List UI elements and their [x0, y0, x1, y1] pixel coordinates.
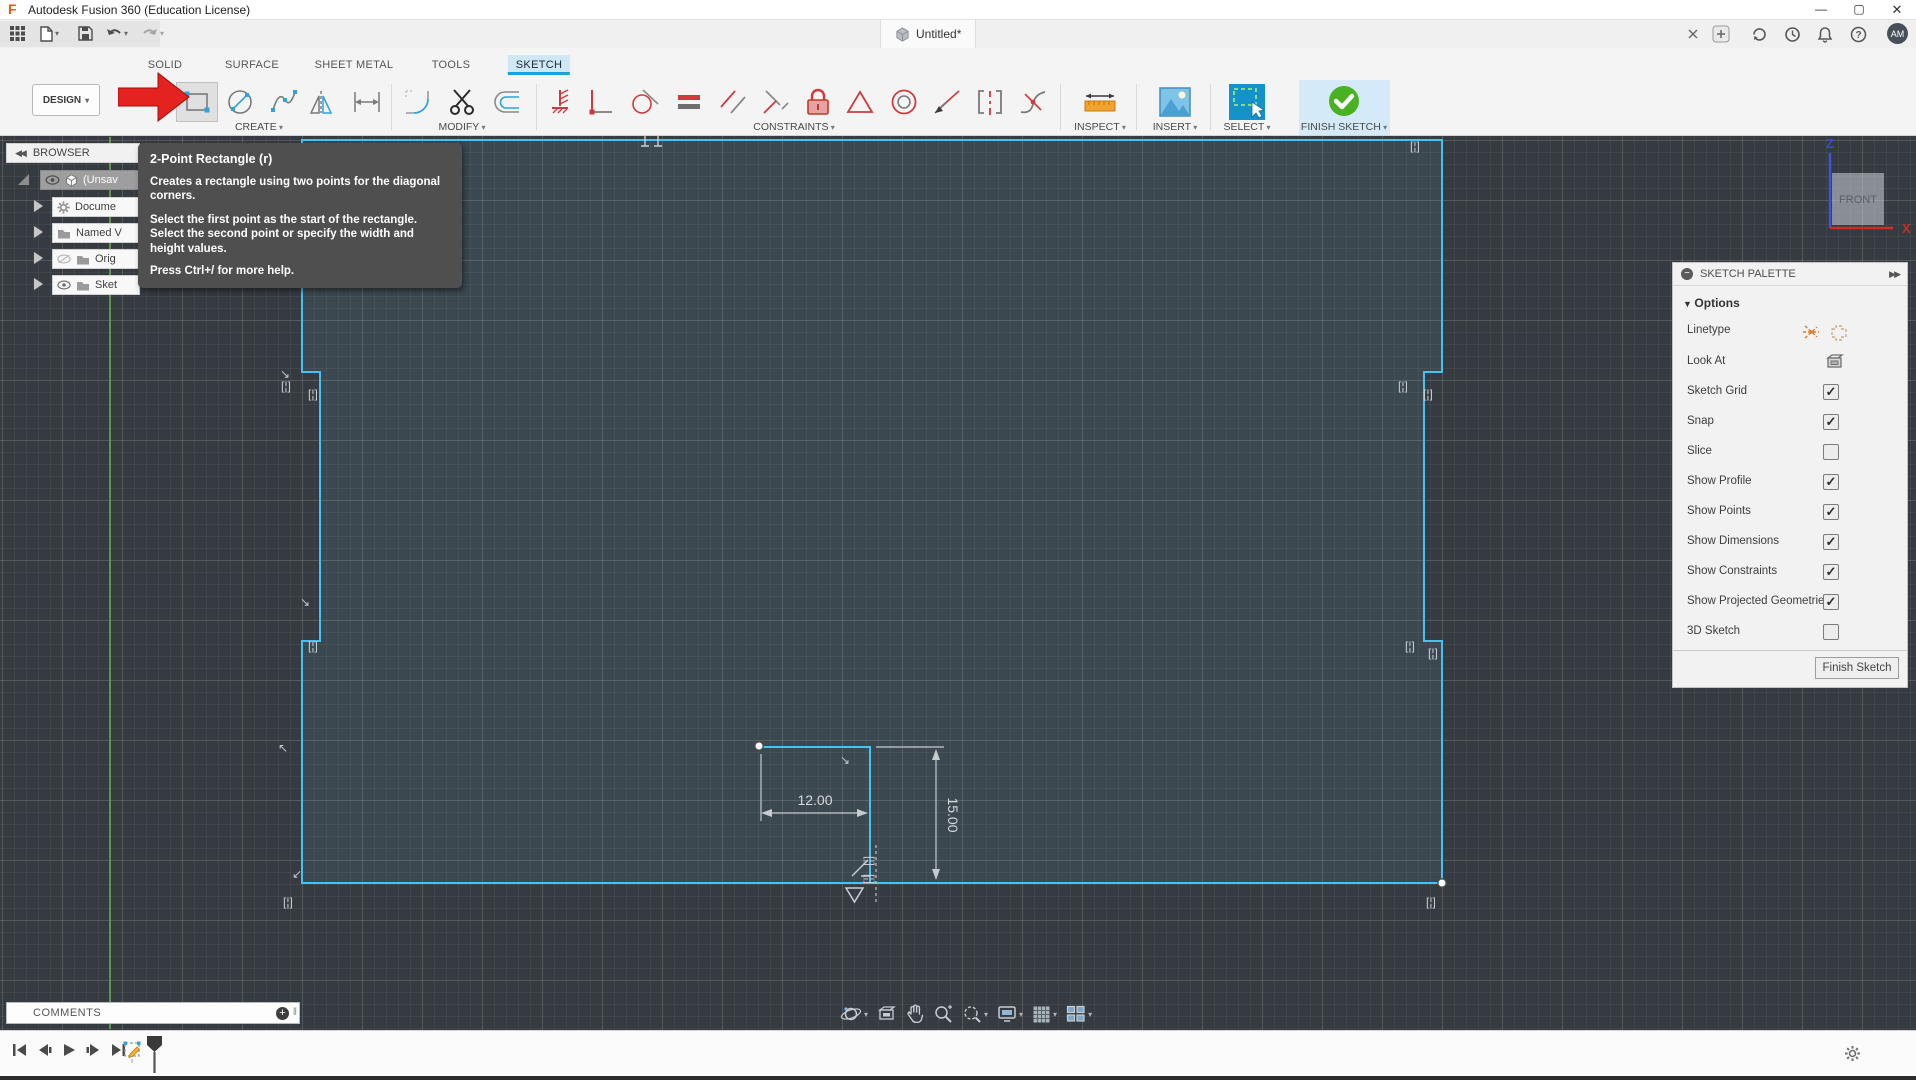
viewports-icon[interactable]: ▾ [1066, 1005, 1092, 1023]
expand-arrow-icon[interactable] [34, 226, 43, 238]
expand-palette-icon[interactable]: ▶▶ [1889, 269, 1899, 280]
notifications-bell-icon[interactable] [1814, 24, 1836, 44]
group-label-inspect[interactable]: INSPECT [1074, 121, 1126, 133]
constraint-equal-icon[interactable] [668, 82, 710, 122]
palette-row-show-profile: Show Profile [1673, 472, 1907, 494]
tooltip-instructions: Select the first point as the start of t… [150, 213, 450, 256]
browser-item-label: Orig [95, 253, 116, 265]
palette-row-snap: Snap [1673, 412, 1907, 434]
palette-row-label: Show Profile [1687, 475, 1752, 487]
browser-item-label: (Unsav [83, 174, 118, 186]
palette-options-section[interactable]: Options [1683, 296, 1740, 310]
user-avatar[interactable]: AM [1887, 23, 1908, 44]
constraint-coincident-icon[interactable] [580, 82, 622, 122]
tooltip-description: Creates a rectangle using two points for… [150, 175, 450, 204]
constraint-symmetry-icon[interactable] [969, 82, 1011, 122]
sketch-grid-checkbox[interactable] [1823, 384, 1839, 400]
constraint-fix-lock-icon[interactable] [797, 82, 839, 122]
minimize-button[interactable]: — [1802, 0, 1840, 20]
timeline-scrubber[interactable] [146, 1035, 164, 1075]
app-grid-icon[interactable] [10, 24, 25, 43]
palette-divider [1673, 650, 1907, 651]
history-clock-icon[interactable] [1781, 24, 1803, 44]
sketch-palette-title: SKETCH PALETTE [1700, 268, 1796, 280]
palette-row-sketch-grid: Sketch Grid [1673, 382, 1907, 404]
palette-row-slice: Slice [1673, 442, 1907, 464]
fusion-logo-icon: F [8, 2, 22, 17]
expand-arrow-icon[interactable] [34, 200, 43, 212]
gear-icon [57, 201, 70, 214]
palette-row-show-projected-geometries: Show Projected Geometries [1673, 592, 1907, 614]
folder-icon [76, 280, 90, 291]
pan-icon[interactable] [906, 1004, 924, 1024]
workspace-selector[interactable]: DESIGN ▾ [32, 84, 100, 116]
visibility-off-eye-icon[interactable] [57, 254, 71, 264]
ribbon: SOLID SURFACE SHEET METAL TOOLS SKETCH D… [0, 48, 1916, 136]
collapse-palette-icon[interactable]: − [1681, 268, 1693, 280]
browser-item-document-settings[interactable]: Docume [52, 197, 140, 217]
constraint-parallel-icon[interactable] [712, 82, 754, 122]
tab-tools[interactable]: TOOLS [424, 55, 479, 75]
fusion360-window: F Autodesk Fusion 360 (Education License… [0, 0, 1916, 1080]
visibility-eye-icon[interactable] [57, 280, 71, 290]
palette-row-look-at: Look At [1673, 352, 1907, 374]
palette-row-label: Snap [1687, 415, 1714, 427]
undo-caret[interactable]: ▾ [124, 29, 128, 38]
window-title: Autodesk Fusion 360 (Education License) [28, 3, 250, 17]
browser-item-label: Docume [75, 201, 116, 213]
play-button[interactable] [62, 1043, 76, 1057]
skip-to-start-button[interactable] [12, 1043, 27, 1057]
collapse-browser-icon[interactable]: ◀◀ [15, 148, 25, 159]
constraint-midpoint-icon[interactable] [926, 82, 968, 122]
orbit-caret[interactable]: ▾ [864, 1010, 868, 1019]
tab-sketch[interactable]: SKETCH [508, 55, 570, 75]
tab-surface[interactable]: SURFACE [217, 55, 287, 75]
step-back-button[interactable] [37, 1043, 52, 1057]
timeline-playback-controls [12, 1043, 126, 1057]
browser-title: BROWSER [33, 147, 90, 159]
workspace-caret: ▾ [85, 96, 89, 105]
sketch-palette-header[interactable]: − SKETCH PALETTE ▶▶ [1673, 263, 1907, 286]
navigation-bar: ▾ ▾ ▾ ▾ ▾ [840, 1000, 1092, 1028]
fillet-tool[interactable] [396, 82, 438, 122]
document-tab-label: Untitled* [916, 27, 961, 41]
tool-tooltip: 2-Point Rectangle (r) Creates a rectangl… [138, 143, 462, 288]
palette-row-label: Show Constraints [1687, 565, 1777, 577]
palette-row-label: Sketch Grid [1687, 385, 1747, 397]
ribbon-divider [1136, 84, 1137, 130]
help-icon[interactable]: ? [1847, 24, 1869, 44]
save-button[interactable] [78, 24, 93, 43]
folder-icon [57, 228, 71, 239]
timeline-sketch-feature-icon[interactable] [122, 1040, 144, 1064]
palette-row-label: Slice [1687, 445, 1712, 457]
viewports-caret[interactable]: ▾ [1088, 1010, 1092, 1019]
document-cube-icon [895, 27, 910, 42]
job-status-icon[interactable] [1748, 24, 1770, 44]
finish-sketch-panel[interactable]: FINISH SKETCH [1299, 80, 1390, 135]
slice-checkbox[interactable] [1823, 444, 1839, 460]
close-tab-icon[interactable] [1682, 24, 1704, 44]
inspect-measure-tool[interactable] [1079, 82, 1121, 122]
folder-icon [76, 254, 90, 265]
browser-item-named-views[interactable]: Named V [52, 223, 140, 243]
browser-item-origin[interactable]: Orig [52, 249, 140, 269]
show-dimensions-checkbox[interactable] [1823, 534, 1839, 550]
look-at-icon[interactable] [1825, 353, 1845, 371]
ribbon-divider [1060, 84, 1061, 130]
browser-item-label: Named V [76, 227, 122, 239]
constraint-curvature-icon[interactable] [1012, 82, 1054, 122]
constraint-midpoint-triangle-icon[interactable] [839, 82, 881, 122]
mirror-tool[interactable] [302, 82, 344, 122]
application-bar: ▾ ▾ ▾ Untitled* ? [0, 20, 1916, 48]
palette-row-show-constraints: Show Constraints [1673, 562, 1907, 584]
insert-image-tool[interactable] [1154, 82, 1196, 122]
browser-header[interactable]: ◀◀ BROWSER [6, 143, 140, 163]
trim-tool[interactable] [441, 82, 483, 122]
palette-row-show-dimensions: Show Dimensions [1673, 532, 1907, 554]
constraint-horizontal-vertical-icon[interactable] [539, 82, 581, 122]
maximize-button[interactable]: ▢ [1840, 0, 1878, 20]
browser-item-label: Sket [95, 279, 117, 291]
palette-row-show-points: Show Points [1673, 502, 1907, 524]
circle-tool[interactable] [219, 82, 261, 122]
look-at-icon[interactable] [877, 1005, 897, 1023]
document-tab[interactable]: Untitled* [880, 20, 976, 48]
add-comment-icon[interactable]: + [276, 1007, 289, 1020]
new-tab-button[interactable] [1710, 24, 1732, 44]
tooltip-title: 2-Point Rectangle (r) [150, 152, 450, 166]
expand-arrow-icon[interactable] [34, 278, 43, 290]
title-bar: F Autodesk Fusion 360 (Education License… [0, 0, 1916, 20]
palette-row-label: Show Points [1687, 505, 1751, 517]
palette-row-linetype: Linetype [1673, 321, 1907, 343]
expand-arrow-icon[interactable] [34, 252, 43, 264]
palette-row-label: Look At [1687, 355, 1725, 367]
finish-sketch-label: FINISH SKETCH [1301, 121, 1387, 133]
red-annotation-arrow [118, 72, 190, 122]
group-label-insert[interactable]: INSERT [1153, 121, 1198, 133]
snap-checkbox[interactable] [1823, 414, 1839, 430]
display-settings-icon[interactable]: ▾ [997, 1005, 1023, 1023]
timeline-bar [0, 1030, 1916, 1076]
ribbon-divider [391, 84, 392, 130]
bottom-edge-strip [0, 1076, 1916, 1080]
finish-sketch-button[interactable]: Finish Sketch [1815, 657, 1899, 679]
tooltip-help-hint: Press Ctrl+/ for more help. [150, 265, 450, 277]
group-label-create[interactable]: CREATE [235, 121, 283, 133]
step-forward-button[interactable] [86, 1043, 101, 1057]
tab-sheet-metal[interactable]: SHEET METAL [307, 55, 402, 75]
sketch-dimension-tool[interactable] [346, 82, 388, 122]
show-projected-geometries-checkbox[interactable] [1823, 594, 1839, 610]
document-cube-icon [65, 174, 78, 187]
show-points-checkbox[interactable] [1823, 504, 1839, 520]
browser-item-document-root[interactable]: (Unsav [40, 170, 140, 190]
redo-caret[interactable]: ▾ [160, 29, 164, 38]
ribbon-divider [1210, 84, 1211, 130]
timeline-settings-gear-icon[interactable] [1844, 1045, 1861, 1062]
3d-sketch-checkbox[interactable] [1823, 624, 1839, 640]
visibility-eye-icon[interactable] [45, 175, 60, 185]
show-constraints-checkbox[interactable] [1823, 564, 1839, 580]
orbit-icon[interactable]: ▾ [840, 1004, 868, 1024]
comments-bar[interactable]: COMMENTS + ‖ [6, 1002, 300, 1024]
browser-root-expand-icon[interactable] [18, 174, 29, 185]
grid-snap-icon[interactable]: ▾ [1032, 1005, 1057, 1024]
fit-caret[interactable]: ▾ [984, 1010, 988, 1019]
constraint-tangent-icon[interactable] [624, 82, 666, 122]
group-label-select[interactable]: SELECT [1223, 121, 1270, 133]
grid-caret[interactable]: ▾ [1053, 1010, 1057, 1019]
group-label-modify[interactable]: MODIFY [438, 121, 485, 133]
select-tool[interactable] [1226, 82, 1268, 122]
file-menu-caret: ▾ [55, 29, 59, 38]
offset-tool[interactable] [485, 82, 527, 122]
palette-row-label: 3D Sketch [1687, 625, 1740, 637]
fit-icon[interactable]: ▾ [962, 1004, 988, 1024]
workspace-label: DESIGN [43, 95, 81, 106]
group-label-constraints[interactable]: CONSTRAINTS [753, 121, 835, 133]
palette-row-label: Show Projected Geometries [1687, 595, 1830, 607]
zoom-icon[interactable] [933, 1004, 953, 1024]
close-button[interactable]: ✕ [1878, 0, 1916, 20]
display-caret[interactable]: ▾ [1019, 1010, 1023, 1019]
spline-tool[interactable] [263, 82, 305, 122]
show-profile-checkbox[interactable] [1823, 474, 1839, 490]
constraint-concentric-icon[interactable] [883, 82, 925, 122]
comments-label: COMMENTS [33, 1007, 101, 1019]
browser-item-sketches[interactable]: Sket [52, 275, 140, 295]
palette-row-label: Show Dimensions [1687, 535, 1779, 547]
linetype-projection-icon[interactable] [1829, 323, 1849, 341]
redo-button[interactable]: ▾ [142, 24, 164, 43]
svg-text:?: ? [1855, 30, 1861, 41]
ribbon-divider [536, 84, 537, 130]
linetype-construction-icon[interactable] [1801, 323, 1821, 341]
sketch-palette: − SKETCH PALETTE ▶▶ Options Linetype Loo… [1672, 262, 1908, 688]
undo-button[interactable]: ▾ [106, 24, 128, 43]
finish-sketch-check-icon [1327, 84, 1361, 118]
file-menu-button[interactable]: ▾ [40, 24, 59, 43]
palette-row-label: Linetype [1687, 324, 1730, 336]
comments-resize-handle[interactable]: ‖ [293, 1007, 297, 1018]
constraint-perpendicular-icon[interactable] [755, 82, 797, 122]
palette-row-3d-sketch: 3D Sketch [1673, 622, 1907, 644]
